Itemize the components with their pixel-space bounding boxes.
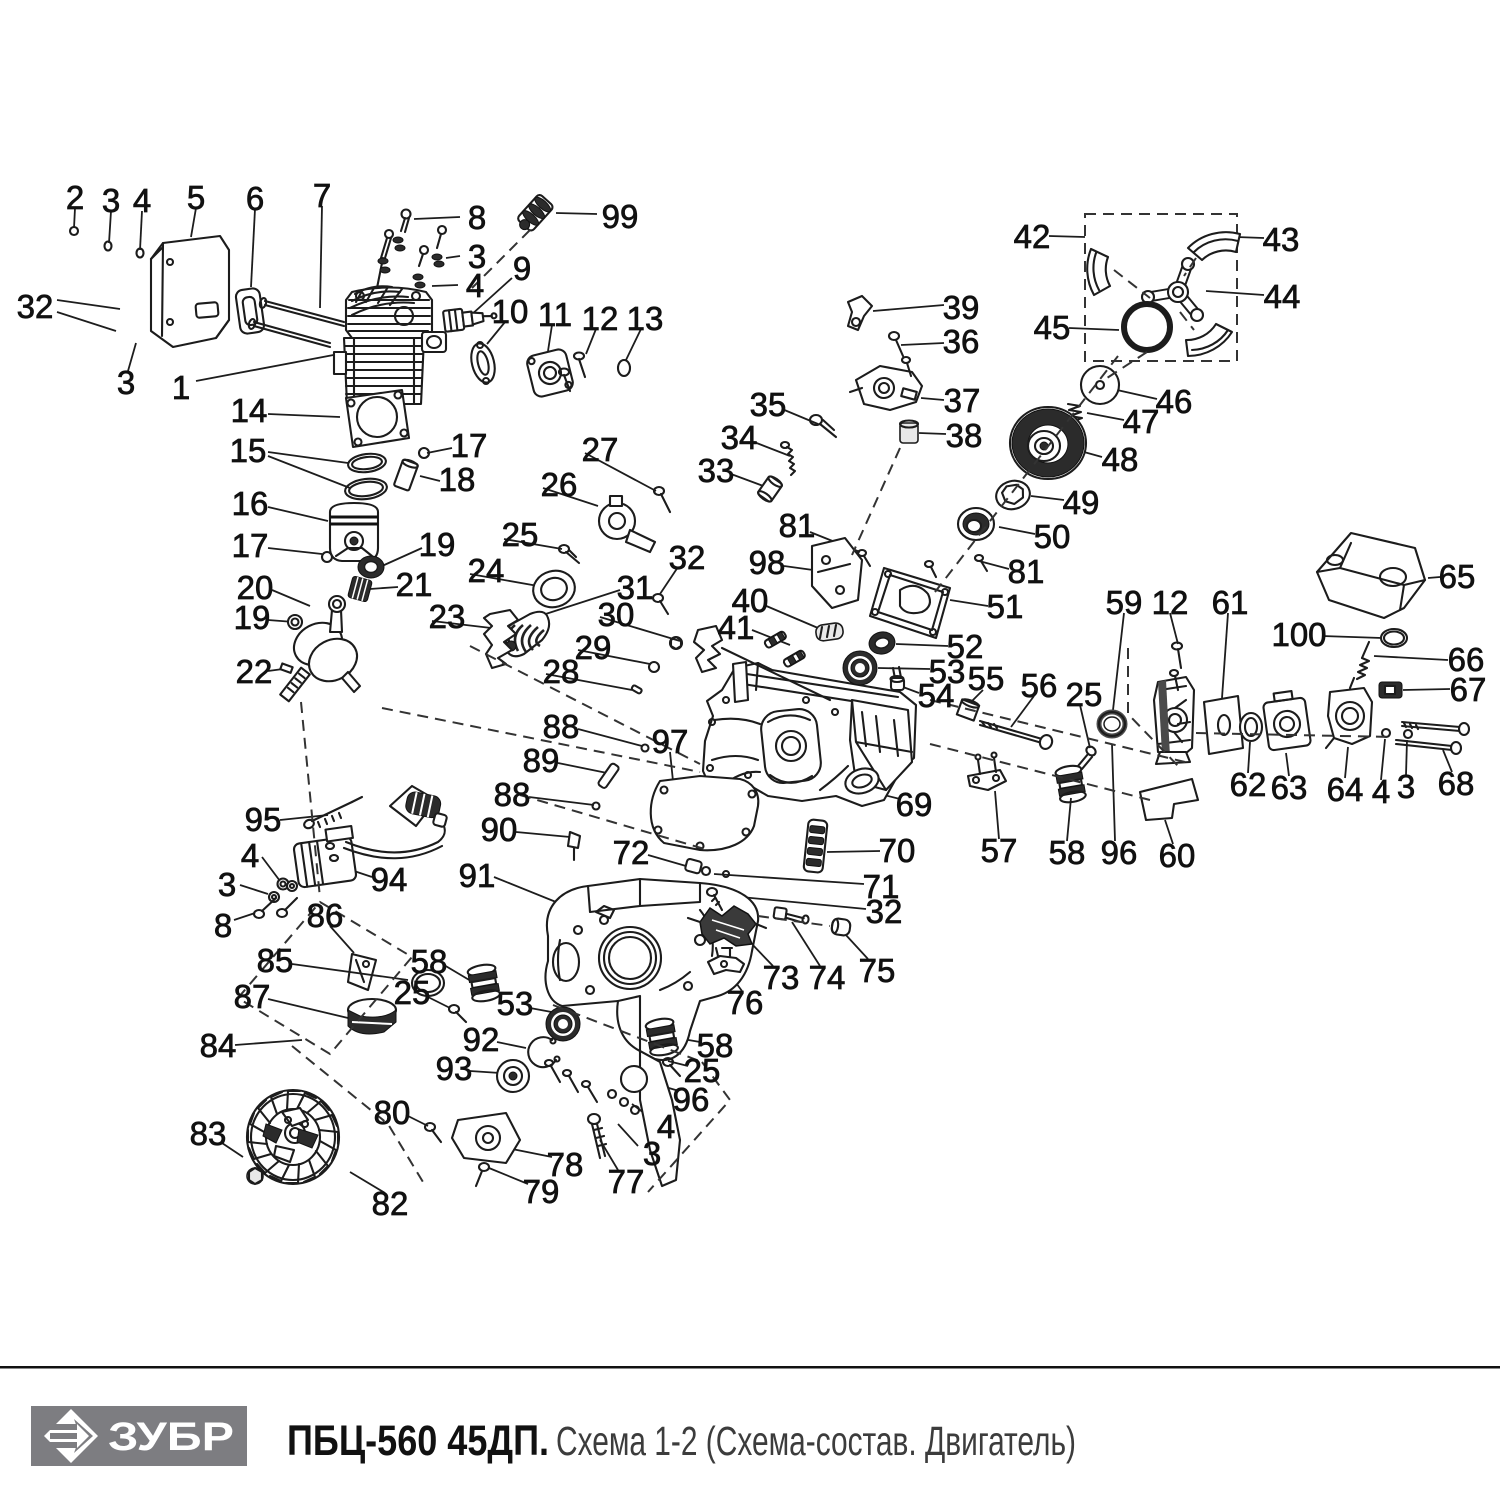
svg-text:32: 32 <box>669 539 706 576</box>
svg-text:28: 28 <box>543 653 580 690</box>
svg-text:4: 4 <box>466 267 484 304</box>
svg-text:89: 89 <box>523 742 560 779</box>
svg-text:93: 93 <box>436 1050 473 1087</box>
svg-text:46: 46 <box>1156 383 1193 420</box>
svg-text:100: 100 <box>1271 616 1326 653</box>
svg-text:75: 75 <box>859 952 896 989</box>
svg-text:86: 86 <box>307 897 344 934</box>
svg-text:27: 27 <box>582 431 619 468</box>
svg-text:59: 59 <box>1106 584 1143 621</box>
svg-text:64: 64 <box>1327 771 1364 808</box>
svg-text:18: 18 <box>439 461 476 498</box>
svg-text:5: 5 <box>187 179 205 216</box>
svg-text:45: 45 <box>1034 309 1071 346</box>
svg-text:77: 77 <box>608 1163 645 1200</box>
svg-text:61: 61 <box>1212 584 1249 621</box>
svg-text:57: 57 <box>981 832 1018 869</box>
svg-text:97: 97 <box>652 723 689 760</box>
svg-text:32: 32 <box>17 288 54 325</box>
svg-text:80: 80 <box>374 1094 411 1131</box>
svg-text:16: 16 <box>232 485 269 522</box>
svg-text:87: 87 <box>234 978 271 1015</box>
svg-text:85: 85 <box>257 942 294 979</box>
svg-text:81: 81 <box>1008 553 1045 590</box>
svg-text:21: 21 <box>396 566 433 603</box>
svg-text:88: 88 <box>494 776 531 813</box>
svg-text:32: 32 <box>866 893 903 930</box>
svg-text:ЗУБР: ЗУБР <box>108 1415 234 1459</box>
svg-text:36: 36 <box>943 323 980 360</box>
svg-text:76: 76 <box>727 984 764 1021</box>
svg-text:17: 17 <box>232 527 269 564</box>
svg-text:68: 68 <box>1438 765 1475 802</box>
svg-text:35: 35 <box>750 386 787 423</box>
svg-text:3: 3 <box>218 866 236 903</box>
svg-text:14: 14 <box>231 392 268 429</box>
svg-text:49: 49 <box>1063 484 1100 521</box>
svg-text:43: 43 <box>1263 221 1300 258</box>
svg-text:26: 26 <box>541 466 578 503</box>
svg-text:98: 98 <box>749 544 786 581</box>
svg-text:90: 90 <box>481 811 518 848</box>
svg-text:96: 96 <box>673 1081 710 1118</box>
svg-text:33: 33 <box>698 452 735 489</box>
svg-text:17: 17 <box>451 427 488 464</box>
svg-text:8: 8 <box>214 907 232 944</box>
svg-text:25: 25 <box>1066 676 1103 713</box>
svg-text:25: 25 <box>394 974 431 1011</box>
svg-text:4: 4 <box>1372 773 1390 810</box>
svg-text:83: 83 <box>190 1115 227 1152</box>
svg-text:3: 3 <box>117 364 135 401</box>
svg-text:34: 34 <box>721 419 758 456</box>
svg-text:91: 91 <box>459 857 496 894</box>
svg-text:96: 96 <box>1101 834 1138 871</box>
svg-text:48: 48 <box>1102 441 1139 478</box>
svg-text:12: 12 <box>582 300 619 337</box>
svg-text:41: 41 <box>718 609 755 646</box>
svg-text:94: 94 <box>371 861 408 898</box>
svg-text:4: 4 <box>241 837 259 874</box>
svg-text:19: 19 <box>234 599 271 636</box>
svg-text:74: 74 <box>809 959 846 996</box>
svg-text:7: 7 <box>313 177 331 214</box>
svg-text:51: 51 <box>987 588 1024 625</box>
svg-text:3: 3 <box>1397 768 1415 805</box>
svg-text:84: 84 <box>200 1027 237 1064</box>
svg-text:4: 4 <box>133 182 151 219</box>
svg-text:11: 11 <box>538 296 572 333</box>
svg-text:82: 82 <box>372 1185 409 1222</box>
svg-text:99: 99 <box>602 198 639 235</box>
svg-text:13: 13 <box>627 300 664 337</box>
svg-text:81: 81 <box>779 507 816 544</box>
svg-text:54: 54 <box>918 677 955 714</box>
svg-text:70: 70 <box>879 832 916 869</box>
svg-text:38: 38 <box>946 417 983 454</box>
svg-text:3: 3 <box>102 182 120 219</box>
svg-text:42: 42 <box>1014 218 1051 255</box>
svg-text:67: 67 <box>1450 671 1487 708</box>
svg-text:44: 44 <box>1264 278 1301 315</box>
svg-text:53: 53 <box>497 985 534 1022</box>
svg-text:56: 56 <box>1021 667 1058 704</box>
svg-text:88: 88 <box>543 708 580 745</box>
svg-text:10: 10 <box>492 293 529 330</box>
svg-text:58: 58 <box>1049 834 1086 871</box>
svg-text:55: 55 <box>968 660 1005 697</box>
svg-text:24: 24 <box>468 552 505 589</box>
svg-text:2: 2 <box>66 179 84 216</box>
svg-text:19: 19 <box>419 526 456 563</box>
svg-text:30: 30 <box>598 596 635 633</box>
svg-text:50: 50 <box>1034 518 1071 555</box>
svg-text:3: 3 <box>643 1135 661 1172</box>
svg-text:37: 37 <box>944 382 981 419</box>
svg-text:62: 62 <box>1230 766 1267 803</box>
svg-text:29: 29 <box>575 629 612 666</box>
svg-text:12: 12 <box>1152 584 1189 621</box>
svg-text:95: 95 <box>245 801 282 838</box>
svg-text:72: 72 <box>613 834 650 871</box>
svg-text:69: 69 <box>896 786 933 823</box>
svg-text:6: 6 <box>246 180 264 217</box>
svg-text:63: 63 <box>1271 769 1308 806</box>
svg-text:79: 79 <box>523 1173 560 1210</box>
svg-text:9: 9 <box>513 250 531 287</box>
svg-text:65: 65 <box>1439 558 1476 595</box>
svg-text:15: 15 <box>230 432 267 469</box>
svg-text:25: 25 <box>502 516 539 553</box>
svg-text:47: 47 <box>1123 403 1160 440</box>
svg-text:73: 73 <box>763 959 800 996</box>
svg-text:8: 8 <box>468 199 486 236</box>
svg-text:23: 23 <box>429 598 466 635</box>
svg-text:39: 39 <box>943 289 980 326</box>
svg-text:60: 60 <box>1159 837 1196 874</box>
svg-text:ПБЦ-560 45ДП.: ПБЦ-560 45ДП. <box>287 1417 549 1465</box>
svg-text:1: 1 <box>172 369 190 406</box>
svg-text:22: 22 <box>236 653 273 690</box>
svg-text:Схема 1-2 (Схема-состав. Двига: Схема 1-2 (Схема-состав. Двигатель) <box>556 1418 1076 1464</box>
